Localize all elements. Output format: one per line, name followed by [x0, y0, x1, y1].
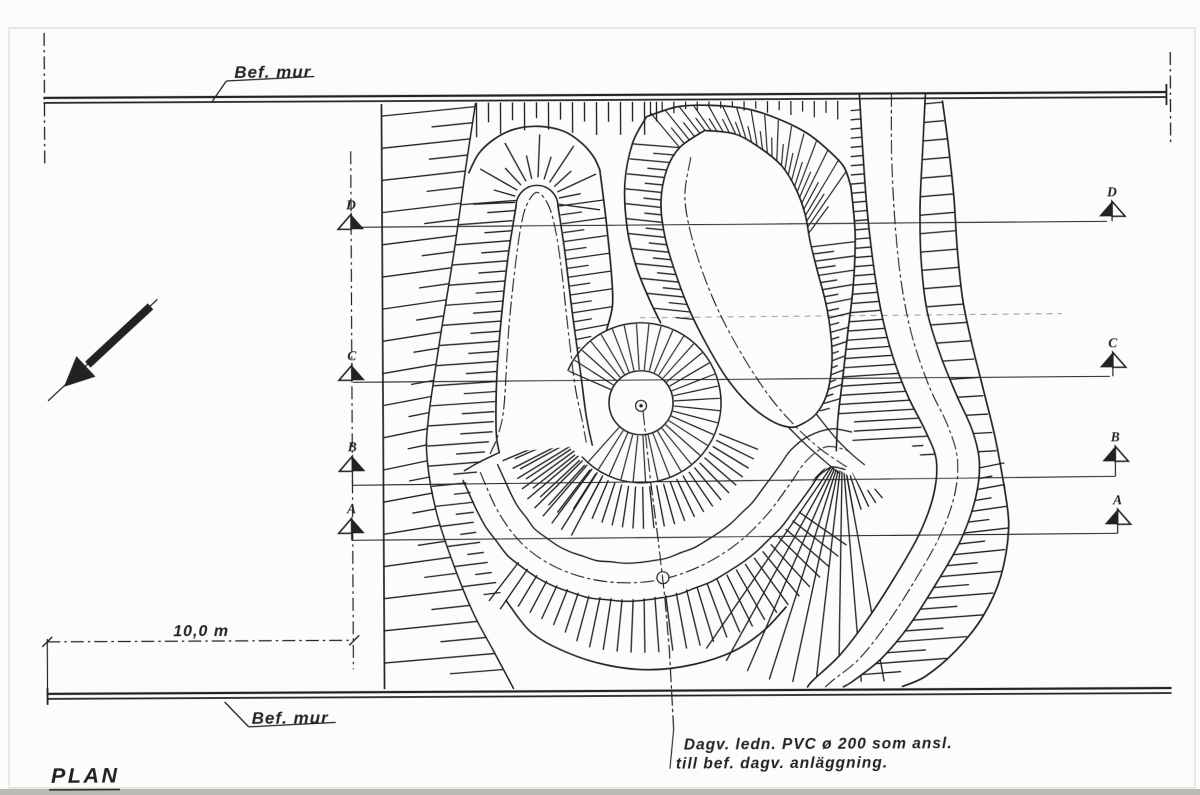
- svg-text:10,0 m: 10,0 m: [173, 623, 229, 640]
- svg-text:till bef. dagv. anläggning.: till bef. dagv. anläggning.: [676, 754, 888, 772]
- svg-text:PLAN: PLAN: [51, 764, 120, 788]
- svg-text:C: C: [1108, 335, 1118, 350]
- svg-text:D: D: [345, 197, 356, 212]
- svg-text:Dagv. ledn. PVC ø 200 som a: Dagv. ledn. PVC ø 200 som ansl.: [684, 735, 953, 753]
- svg-text:A: A: [1112, 492, 1122, 507]
- svg-text:B: B: [347, 439, 357, 454]
- svg-text:C: C: [347, 348, 357, 363]
- svg-text:A: A: [346, 501, 356, 516]
- svg-text:D: D: [1106, 184, 1117, 199]
- svg-text:B: B: [1110, 429, 1120, 444]
